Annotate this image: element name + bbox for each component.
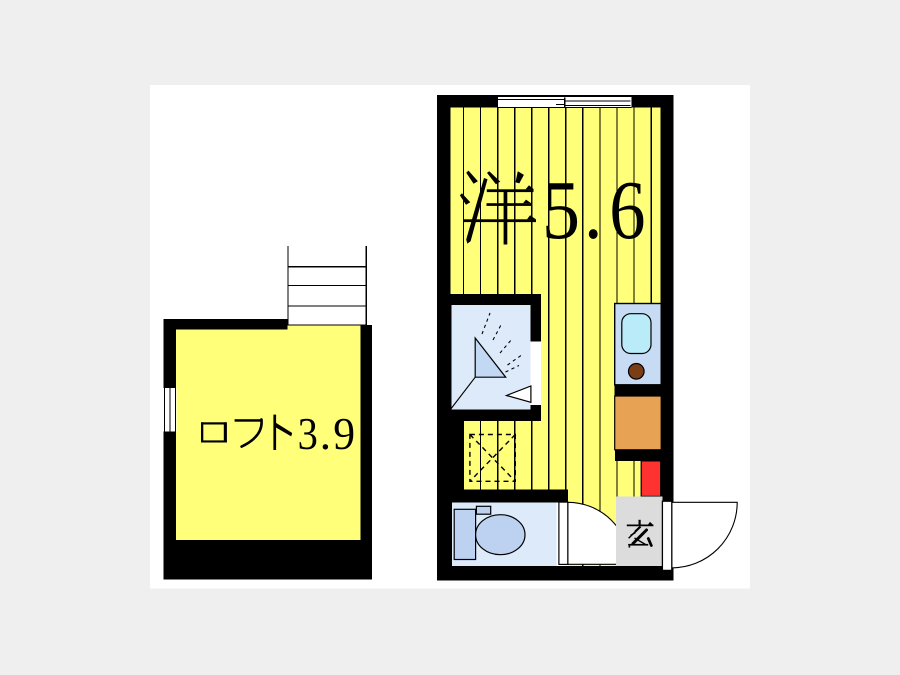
svg-text:3: 3	[298, 409, 318, 460]
svg-text:6: 6	[609, 163, 645, 256]
svg-text:.: .	[584, 164, 603, 257]
svg-text:9: 9	[333, 408, 355, 459]
svg-text:.: .	[320, 408, 332, 459]
svg-text:5: 5	[542, 164, 580, 257]
